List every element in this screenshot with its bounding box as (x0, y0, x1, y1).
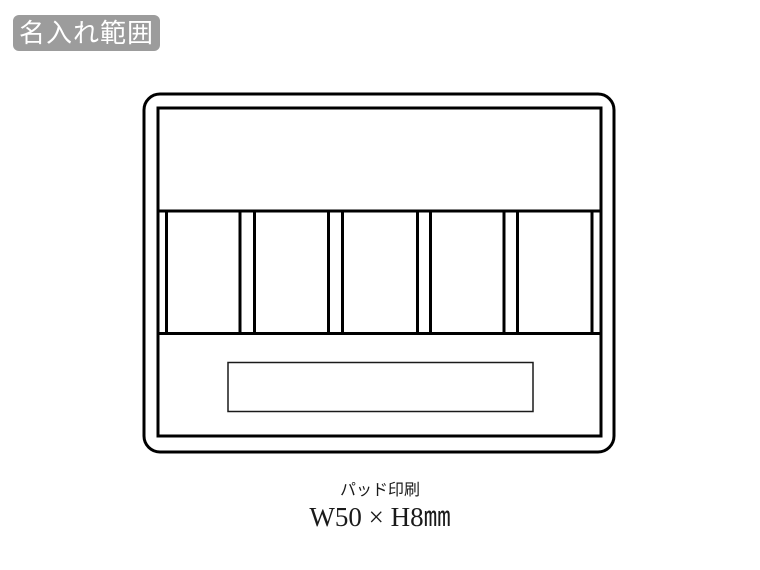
print-method-label: パッド印刷 (0, 480, 760, 502)
print-area-rect (228, 363, 533, 412)
print-size-label: W50 × H8㎜ (0, 502, 760, 532)
case-inner-outline (158, 108, 601, 436)
caption: パッド印刷 W50 × H8㎜ (0, 480, 760, 532)
page: 名入れ範囲 パッド印刷 W50 × H8㎜ (0, 0, 760, 570)
case-outer-outline (144, 94, 614, 452)
